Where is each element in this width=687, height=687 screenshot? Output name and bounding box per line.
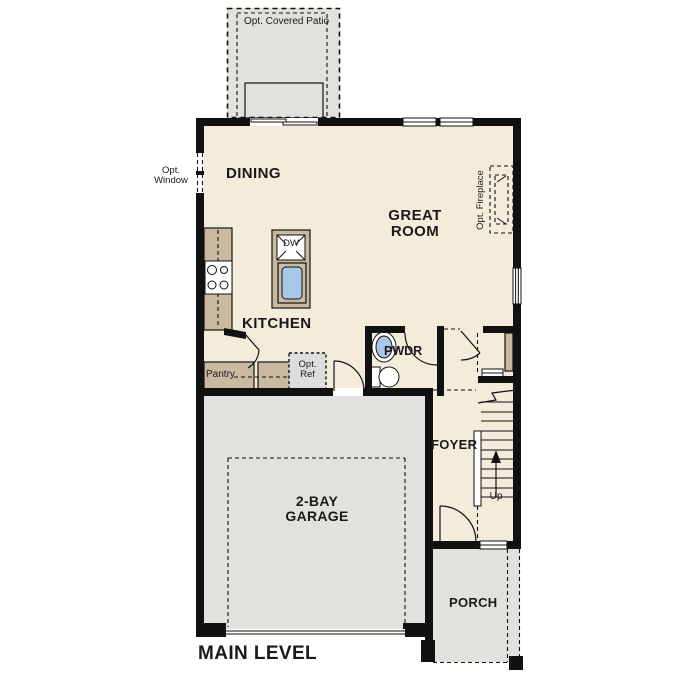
right-wall-window <box>513 268 521 304</box>
dining-label: DINING <box>226 166 281 182</box>
opt-fireplace-label: Opt. Fireplace <box>476 165 488 235</box>
patio-label: Opt. Covered Patio <box>244 17 329 28</box>
great-room-window-2 <box>440 118 473 126</box>
garage-label: 2-BAY GARAGE <box>277 494 357 524</box>
opt-ref-label: Opt. Ref <box>291 360 324 381</box>
opt-window-label: Opt. Window <box>148 166 194 187</box>
powder-label: PWDR <box>384 345 422 359</box>
kitchen-label: KITCHEN <box>242 316 311 332</box>
great-room-window-1 <box>403 118 436 126</box>
kitchen-sink <box>282 267 302 299</box>
floor-plan: Opt. Covered Patio Opt. Window DINING GR… <box>0 0 687 687</box>
cooktop <box>205 261 232 294</box>
patio-sliding-door <box>250 118 318 126</box>
porch-label: PORCH <box>449 596 497 610</box>
up-label: Up <box>486 492 506 503</box>
toilet <box>379 367 399 387</box>
foyer-label: FOYER <box>431 438 477 452</box>
closet-shelf <box>505 333 513 371</box>
great-room-label: GREAT ROOM <box>378 208 452 240</box>
dishwasher-label: DW <box>277 239 305 249</box>
optional-window <box>196 153 204 193</box>
floor-plan-drawing <box>0 0 687 687</box>
pantry-label: Pantry <box>206 370 235 381</box>
page-title: MAIN LEVEL <box>198 644 317 665</box>
